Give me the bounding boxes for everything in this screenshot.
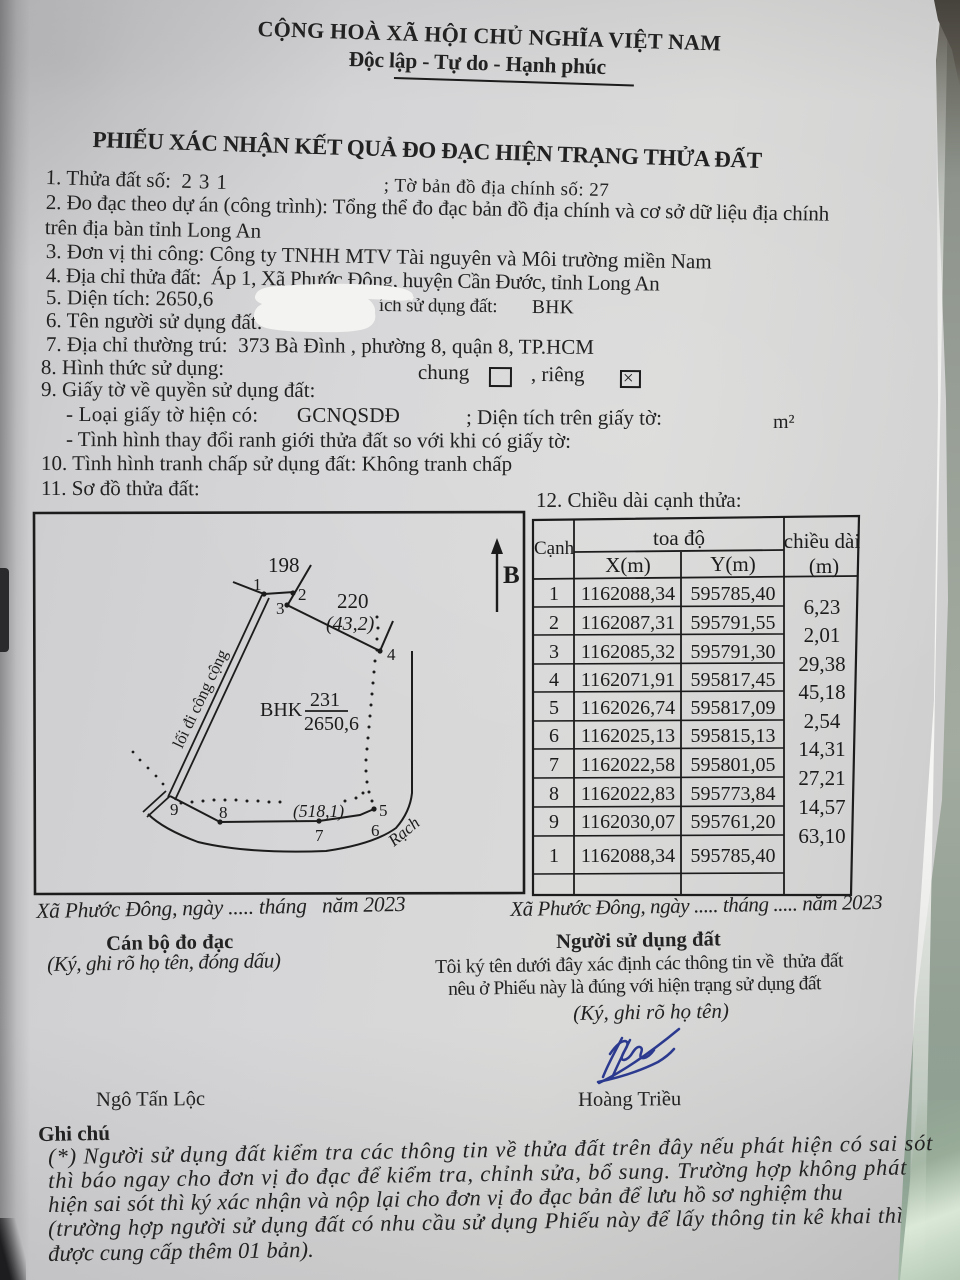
svg-text:1162088,34: 1162088,34 [581,845,675,867]
svg-text:6: 6 [549,725,559,747]
svg-text:chiều dài: chiều dài [784,529,861,553]
svg-text:Rạch: Rạch [384,813,424,851]
svg-text:63,10: 63,10 [798,824,845,848]
svg-text:7: 7 [315,826,324,845]
svg-text:(518,1): (518,1) [293,801,344,821]
svg-text:595785,40: 595785,40 [691,845,776,867]
svg-text:2: 2 [549,612,559,634]
svg-text:1162088,34: 1162088,34 [581,583,675,605]
svg-text:595761,20: 595761,20 [691,811,776,833]
svg-text:231: 231 [310,689,340,711]
svg-text:BHK: BHK [260,699,303,721]
svg-text:595791,55: 595791,55 [691,612,776,634]
svg-text:5: 5 [379,801,388,820]
svg-text:2650,6: 2650,6 [304,713,359,735]
svg-text:2: 2 [298,585,307,604]
svg-text:595801,05: 595801,05 [691,754,776,776]
svg-text:595817,45: 595817,45 [691,669,776,691]
svg-text:B: B [503,562,520,589]
svg-text:3: 3 [276,599,285,618]
svg-text:1162022,58: 1162022,58 [581,754,675,776]
svg-text:1162026,74: 1162026,74 [581,697,675,719]
svg-text:1162030,07: 1162030,07 [581,811,675,833]
svg-text:Y(m): Y(m) [710,552,756,576]
svg-text:Cạnh: Cạnh [534,538,575,559]
svg-text:1: 1 [549,583,559,605]
svg-text:14,31: 14,31 [798,737,845,761]
svg-text:5: 5 [549,697,559,719]
svg-text:(43,2): (43,2) [326,613,375,635]
svg-text:8: 8 [219,803,228,822]
svg-text:45,18: 45,18 [798,680,845,704]
svg-text:2,54: 2,54 [804,709,841,733]
svg-text:1162071,91: 1162071,91 [581,669,675,691]
svg-text:220: 220 [337,589,369,613]
svg-text:14,57: 14,57 [798,795,845,819]
svg-text:1162085,32: 1162085,32 [581,641,675,663]
svg-text:1: 1 [253,575,262,594]
svg-text:1162087,31: 1162087,31 [581,612,675,634]
svg-text:(m): (m) [809,554,839,578]
svg-text:6,23: 6,23 [804,595,841,619]
svg-text:1: 1 [549,845,559,867]
svg-text:X(m): X(m) [605,553,651,577]
svg-text:198: 198 [268,553,300,577]
svg-text:7: 7 [549,754,559,776]
svg-text:1162022,83: 1162022,83 [581,783,675,805]
svg-text:2,01: 2,01 [804,623,841,647]
svg-text:595791,30: 595791,30 [691,641,776,663]
svg-text:8: 8 [549,783,559,805]
svg-text:9: 9 [170,800,179,819]
svg-text:29,38: 29,38 [798,652,845,676]
svg-text:9: 9 [549,811,559,833]
svg-text:595817,09: 595817,09 [691,697,776,719]
svg-text:595785,40: 595785,40 [691,583,776,605]
svg-text:1162025,13: 1162025,13 [581,725,675,747]
svg-text:595773,84: 595773,84 [691,783,776,805]
svg-text:toa độ: toa độ [653,526,705,550]
svg-text:4: 4 [549,669,559,691]
svg-text:3: 3 [549,641,559,663]
svg-text:595815,13: 595815,13 [691,725,776,747]
svg-text:4: 4 [387,645,396,664]
svg-text:27,21: 27,21 [798,766,845,790]
